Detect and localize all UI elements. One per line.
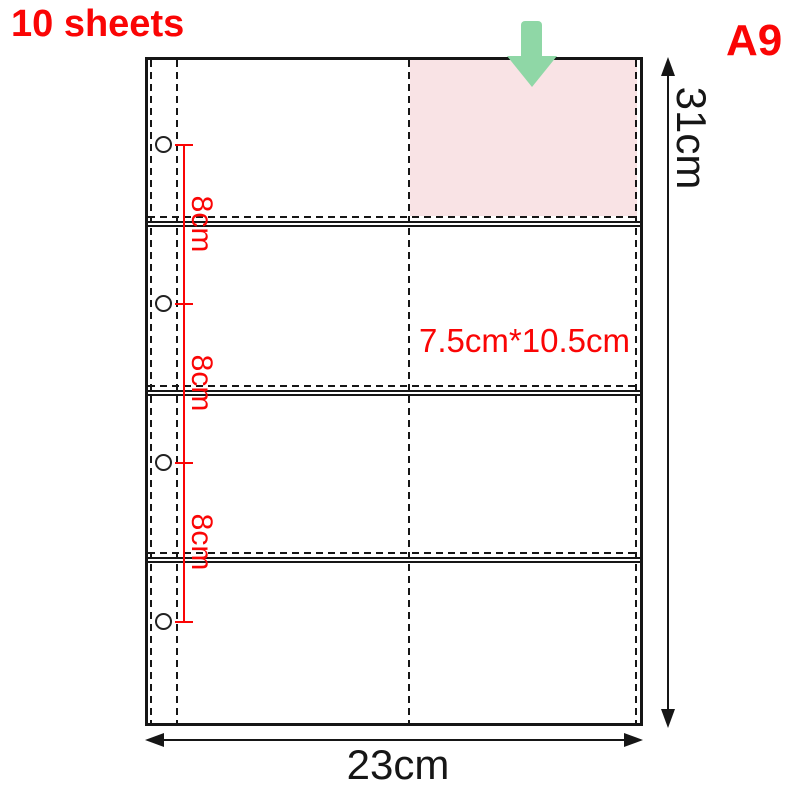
arrowhead-left-icon <box>145 733 164 747</box>
stitch-line <box>148 552 640 554</box>
row-divider <box>148 216 640 228</box>
hole-spacing-label: 8cm <box>186 348 216 418</box>
hole-spacing-tick <box>175 144 193 146</box>
row-divider <box>148 552 640 564</box>
hole-spacing-tick <box>175 462 193 464</box>
stitch-line <box>148 385 640 387</box>
stitch-line <box>148 216 640 218</box>
sheet-count-label: 10 sheets <box>11 3 184 46</box>
pocket-sheet: 8cm 8cm 8cm 7.5cm*10.5cm <box>145 57 643 726</box>
hole-spacing-label: 8cm <box>186 507 216 577</box>
product-diagram: 10 sheets A9 <box>0 0 800 800</box>
binder-hole <box>155 136 172 153</box>
row-divider <box>148 385 640 397</box>
pocket-size-label: 7.5cm*10.5cm <box>410 322 639 360</box>
arrowhead-down-icon <box>661 709 675 728</box>
hole-spacing-label: 8cm <box>186 189 216 259</box>
arrowhead-right-icon <box>624 733 643 747</box>
width-dimension-label: 23cm <box>288 741 508 789</box>
height-dimension-label: 31cm <box>669 66 713 210</box>
size-code-label: A9 <box>726 16 782 66</box>
binder-hole <box>155 613 172 630</box>
hole-spacing-tick <box>175 621 193 623</box>
binder-hole <box>155 295 172 312</box>
hole-spacing-tick <box>175 303 193 305</box>
binder-hole <box>155 454 172 471</box>
